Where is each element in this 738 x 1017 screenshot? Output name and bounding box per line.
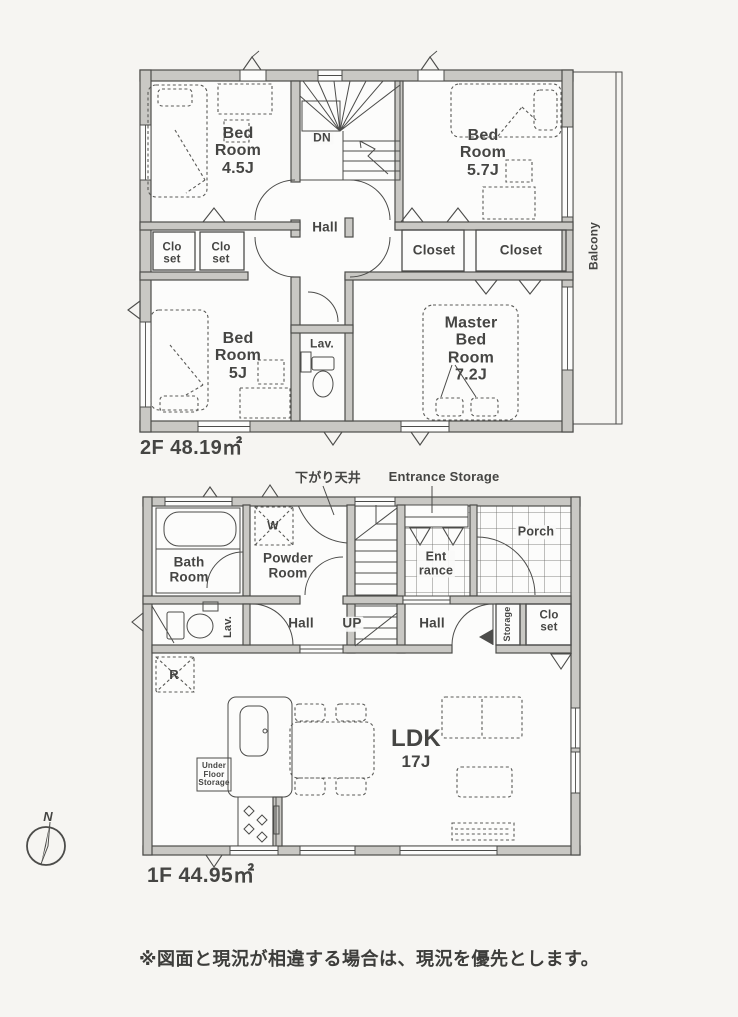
room-label-closet-small-2: Clo set: [211, 242, 230, 267]
stairs-up-label: UP: [340, 617, 363, 632]
room-label-bedroom-5-7: Bed Room 5.7J: [460, 127, 506, 179]
floorplan-drawing: .wall{fill:#c9c8c4;stroke:#4c4c4a;stroke…: [0, 0, 738, 1017]
room-label-storage: Storage: [503, 607, 513, 642]
floor2-area-label: 2F 48.19㎡: [140, 437, 243, 459]
floor1-area-label: 1F 44.95㎡: [147, 864, 255, 887]
washer-label: W: [267, 520, 279, 533]
annotation-lowered-ceiling: 下がり天井: [295, 471, 361, 485]
room-label-hall-left: Hall: [288, 617, 314, 632]
room-label-closet-1f: Clo set: [539, 610, 558, 635]
room-label-closet-1: Closet: [413, 244, 455, 259]
room-label-closet-small-1: Clo set: [162, 242, 181, 267]
room-label-powder: Powder Room: [263, 551, 313, 580]
room-label-balcony: Balcony: [588, 222, 601, 270]
room-label-hall-right: Hall: [419, 617, 445, 632]
room-label-ldk: LDK: [391, 726, 441, 752]
under-floor-storage-label: Under Floor Storage: [198, 762, 229, 788]
room-label-entrance: Ent rance: [417, 551, 455, 578]
disclaimer-text: ※図面と現況が相違する場合は、現況を優先とします。: [139, 950, 599, 970]
room-label-porch: Porch: [516, 525, 556, 539]
annotation-entrance-storage: Entrance Storage: [389, 470, 500, 484]
room-label-ldk-size: 17J: [402, 753, 431, 771]
floor2-plan: [128, 51, 622, 445]
stairs-down-label: DN: [311, 132, 333, 145]
floor1-plan: [132, 485, 580, 867]
compass-north-label: N: [43, 810, 53, 824]
refrigerator-label: R: [169, 668, 179, 682]
porch-tiles: [477, 503, 571, 593]
compass-icon: [27, 822, 65, 865]
room-label-lav-2f: Lav.: [310, 338, 334, 351]
floorplan-page: .wall{fill:#c9c8c4;stroke:#4c4c4a;stroke…: [0, 0, 738, 1017]
room-label-bath: Bath Room: [169, 555, 208, 584]
room-label-bedroom-4-5: Bed Room 4.5J: [215, 125, 261, 177]
room-label-lav-1f: Lav.: [223, 616, 235, 638]
room-label-bedroom-5: Bed Room 5J: [215, 330, 261, 382]
room-label-closet-2: Closet: [500, 244, 542, 259]
room-label-hall-2f: Hall: [312, 221, 338, 236]
room-label-master-bedroom: Master Bed Room 7.2J: [445, 314, 498, 383]
